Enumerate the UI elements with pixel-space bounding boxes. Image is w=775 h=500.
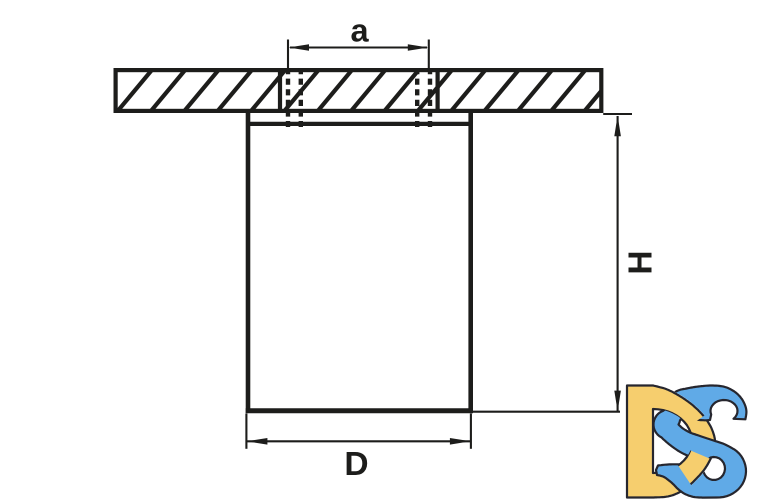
svg-text:a: a [350,13,369,49]
svg-text:H: H [623,250,660,274]
svg-text:D: D [344,446,368,483]
